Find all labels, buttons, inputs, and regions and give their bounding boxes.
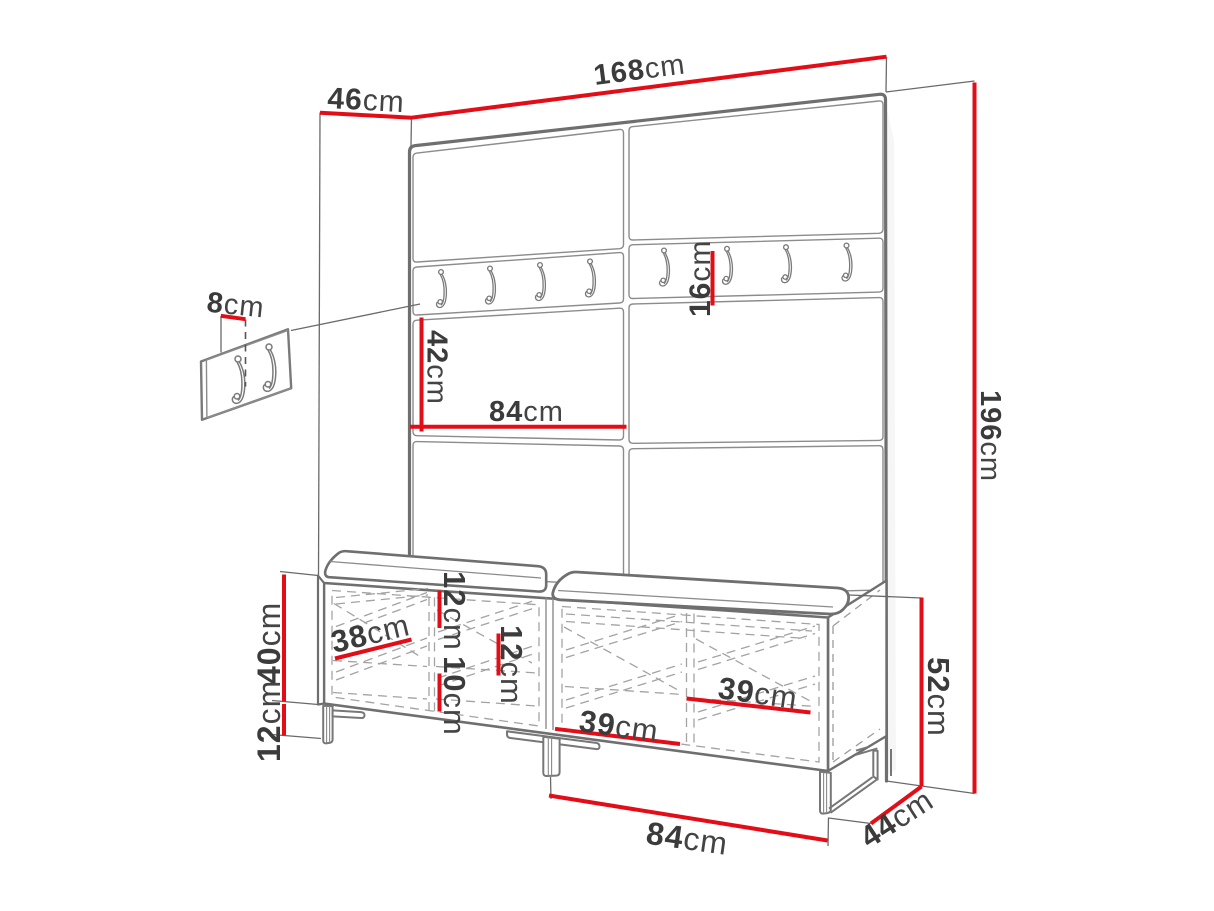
- svg-text:12cm: 12cm: [437, 571, 472, 651]
- svg-text:8cm: 8cm: [205, 287, 266, 325]
- svg-text:84cm: 84cm: [489, 396, 564, 428]
- svg-text:196cm: 196cm: [974, 390, 1006, 482]
- svg-text:42cm: 42cm: [421, 330, 453, 405]
- svg-text:40cm: 40cm: [251, 602, 287, 684]
- svg-text:44cm: 44cm: [854, 782, 940, 855]
- svg-text:52cm: 52cm: [921, 657, 956, 737]
- svg-text:12cm: 12cm: [494, 625, 529, 705]
- svg-text:10cm: 10cm: [437, 656, 472, 736]
- svg-text:12cm: 12cm: [251, 680, 287, 762]
- svg-text:16cm: 16cm: [684, 240, 717, 317]
- svg-text:46cm: 46cm: [327, 82, 406, 119]
